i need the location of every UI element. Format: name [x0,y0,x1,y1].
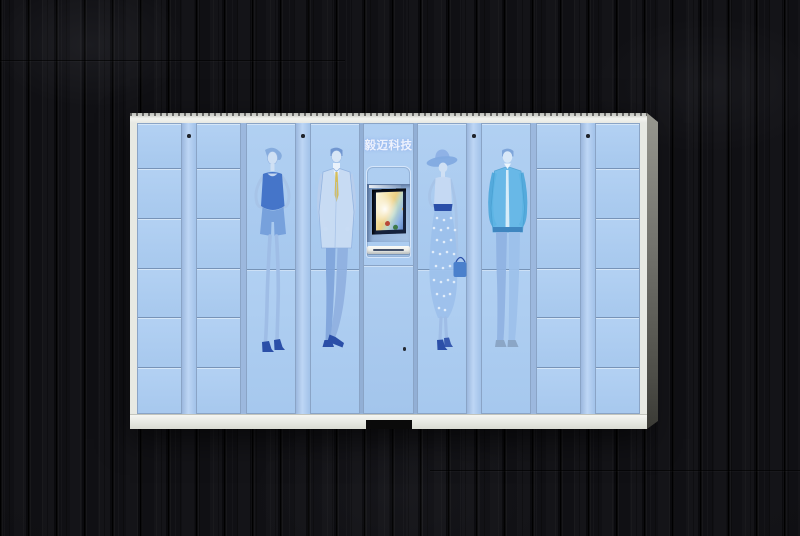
locker-cell [537,219,580,269]
locker-cell [138,219,181,269]
small-locker-column [595,123,640,414]
wood-plank-joint-line [0,60,345,61]
cabinet-base [130,414,647,429]
figure-door-column [246,123,296,414]
column-divider [296,123,310,414]
locker-cell [197,169,240,219]
cabinet-side-panel [647,113,658,429]
column-divider [467,123,481,414]
locker-cell [197,368,240,413]
locker-cell [596,318,639,368]
wood-plank-joint-line [430,470,800,471]
column-divider [182,123,196,414]
locker-cell [138,124,181,169]
brand-label: 毅迈科技 [364,139,413,153]
man-casual-figure-illustration [481,148,531,360]
console-lower-door [364,265,413,413]
cabinet-front-face: 毅迈科技 [130,113,647,429]
small-locker-column [536,123,581,414]
keyhole [403,347,407,351]
locker-cell [537,269,580,319]
screen-artwork [376,192,379,195]
small-locker-column [196,123,241,414]
locker-cell [537,368,580,413]
screen-bezel [372,188,406,234]
figure-door-column [417,123,467,414]
console-column: 毅迈科技 [363,123,414,414]
locker-cell [138,318,181,368]
locker-cell [596,124,639,169]
locker-cell [138,269,181,319]
woman-tank-figure-illustration [246,148,296,360]
locker-cell [197,269,240,319]
card-slot [367,246,410,254]
woman-sunhat-figure-illustration [417,148,467,360]
locker-columns: 毅迈科技 [130,123,647,414]
man-suit-figure-illustration [310,148,360,360]
base-notch [366,420,412,429]
locker-cell [596,368,639,413]
locker-cell [596,169,639,219]
small-locker-column [137,123,182,414]
locker-cell [596,219,639,269]
locker-cell [596,269,639,319]
kiosk-screen [376,192,403,231]
locker-cell [197,219,240,269]
locker-cell [537,124,580,169]
column-divider [581,123,595,414]
locker-cell [537,169,580,219]
figure-door-column [310,123,360,414]
screen-recess [367,184,410,242]
locker-cell [197,318,240,368]
locker-cell [537,318,580,368]
locker-cell [197,124,240,169]
figure-door-column [481,123,531,414]
parcel-locker-cabinet: 毅迈科技 [130,113,647,429]
locker-cell [138,169,181,219]
console-panel: 毅迈科技 [363,123,414,414]
locker-cell [138,368,181,413]
cabinet-top-edge [130,113,647,123]
